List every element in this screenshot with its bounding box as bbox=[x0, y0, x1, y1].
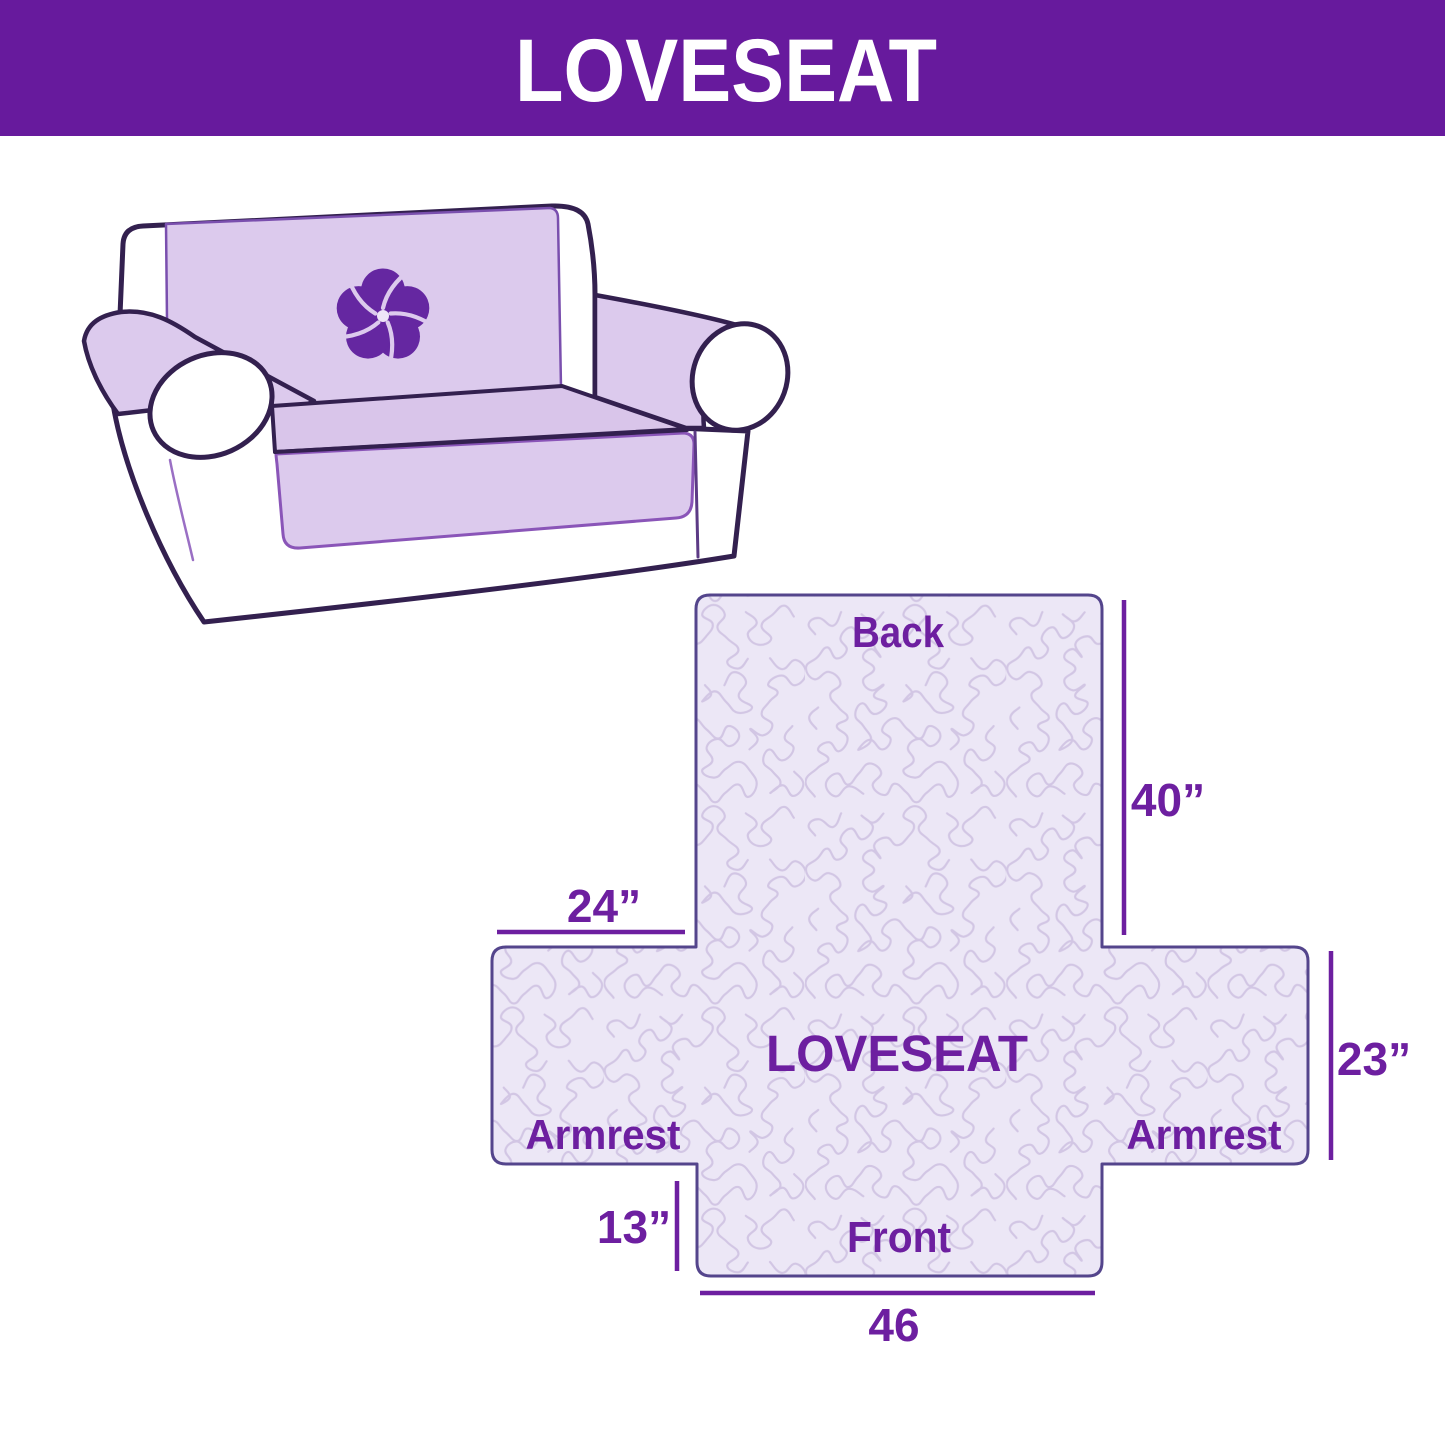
svg-text:23”: 23” bbox=[1337, 1033, 1411, 1085]
svg-text:Front: Front bbox=[847, 1213, 951, 1262]
svg-text:Armrest: Armrest bbox=[526, 1111, 681, 1158]
svg-text:LOVESEAT: LOVESEAT bbox=[766, 1025, 1028, 1082]
svg-text:Back: Back bbox=[852, 608, 944, 657]
svg-text:Armrest: Armrest bbox=[1127, 1111, 1282, 1158]
svg-text:24”: 24” bbox=[567, 880, 641, 932]
svg-text:40”: 40” bbox=[1131, 774, 1205, 826]
svg-text:LOVESEAT: LOVESEAT bbox=[515, 20, 937, 120]
svg-text:13”: 13” bbox=[597, 1201, 671, 1253]
svg-text:46: 46 bbox=[868, 1299, 919, 1351]
